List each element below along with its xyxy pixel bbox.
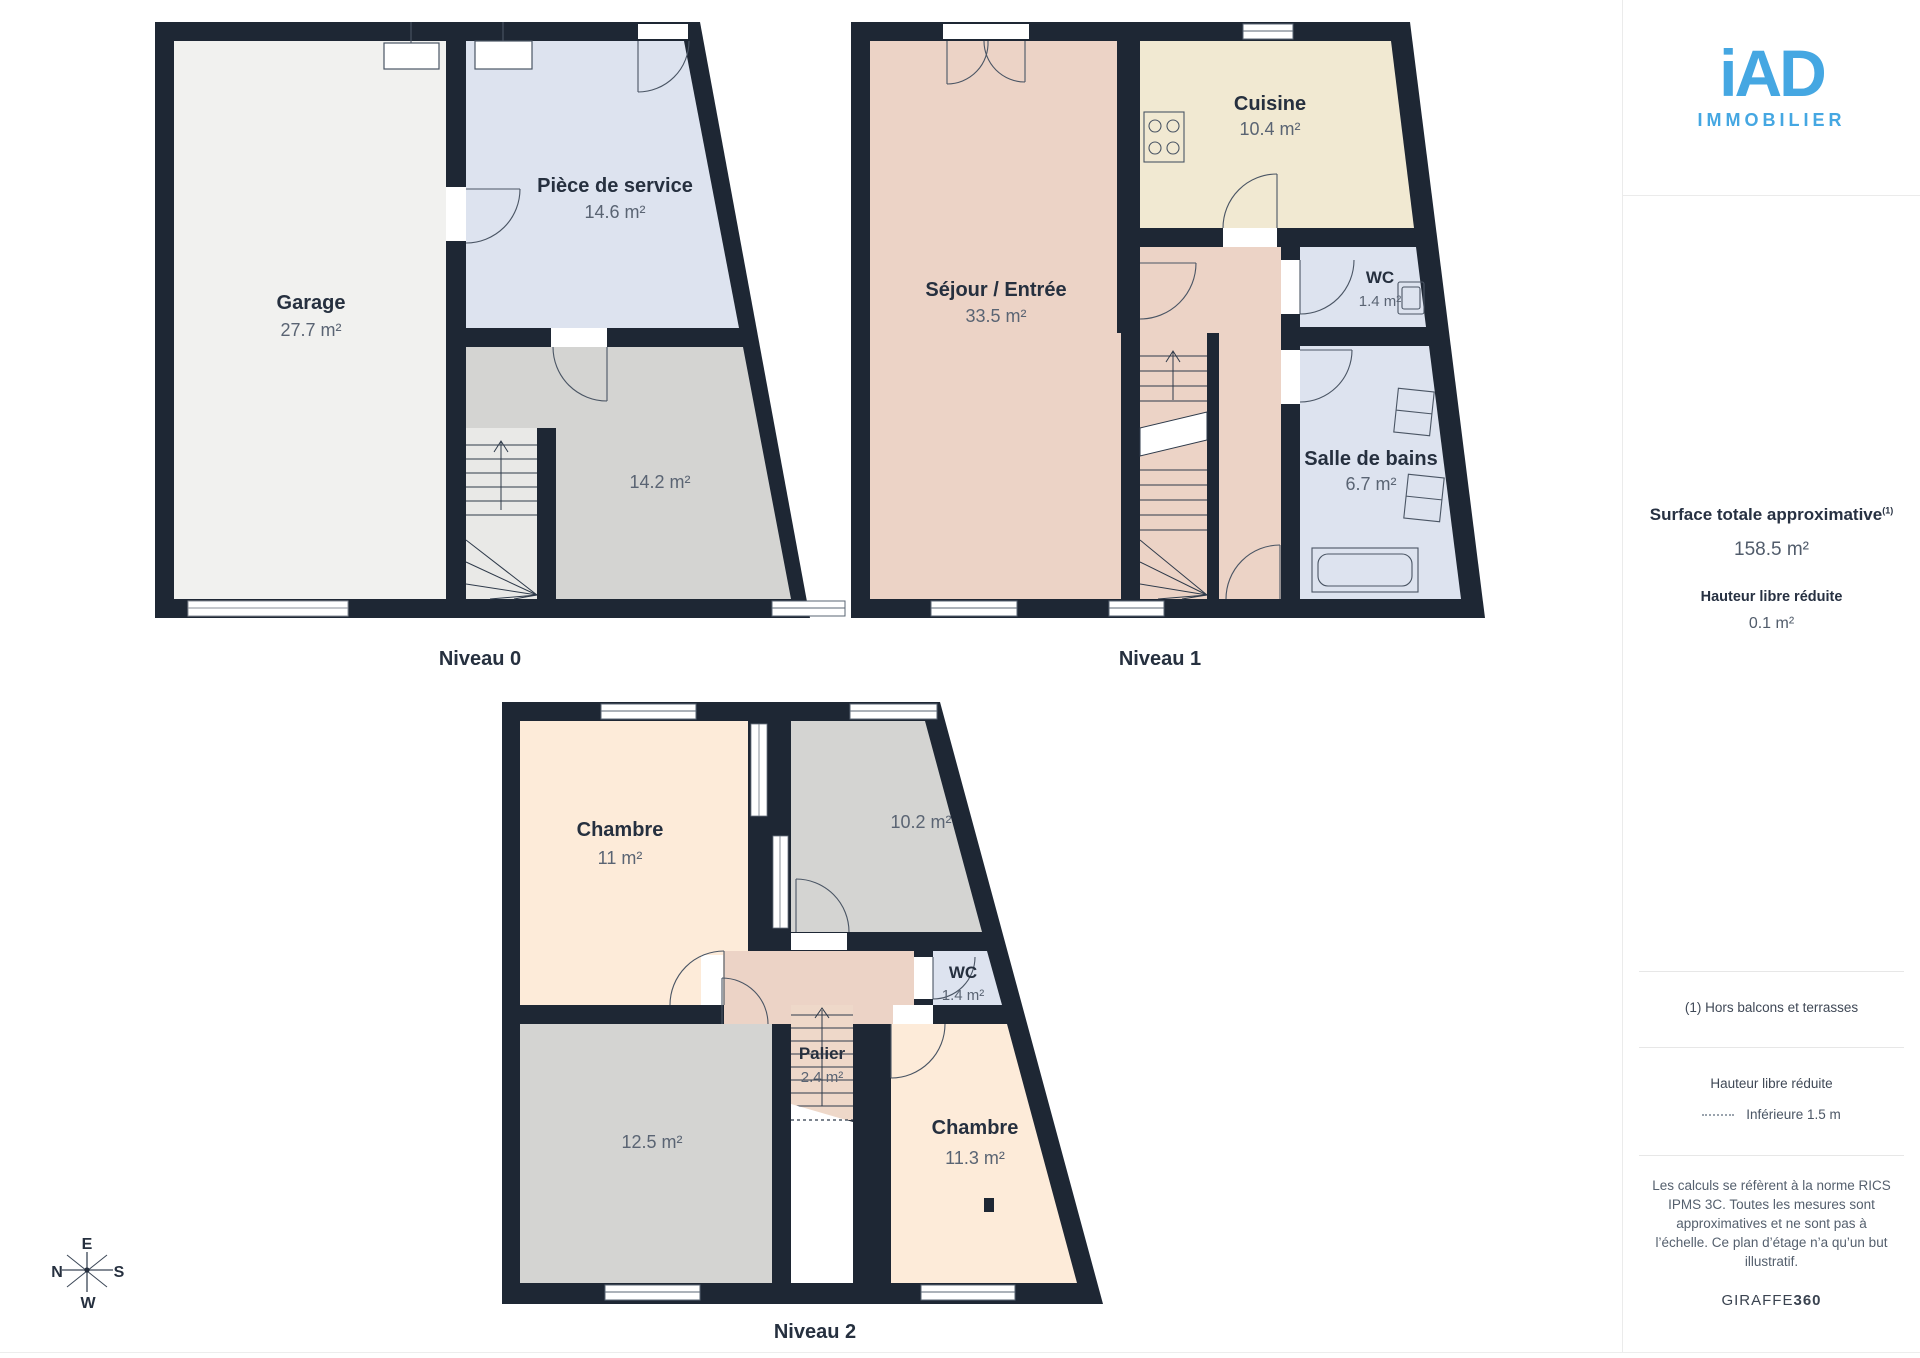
compass-right: S bbox=[114, 1264, 125, 1281]
door-opening bbox=[446, 187, 466, 241]
compass-rose: E N S W bbox=[51, 1236, 124, 1312]
room-label-wc-n2: WC bbox=[949, 963, 977, 982]
level-0-plan: Garage 27.7 m² Pièce de service 14.6 m² … bbox=[155, 22, 810, 670]
compass-top: E bbox=[82, 1236, 93, 1253]
room-label-piece-de-service: Pièce de service bbox=[537, 175, 693, 197]
room-area-10-2: 10.2 m² bbox=[890, 812, 951, 832]
door-opening bbox=[1281, 350, 1300, 404]
wall-stub bbox=[1117, 247, 1140, 333]
column-marker bbox=[984, 1198, 994, 1212]
room-label-palier: Palier bbox=[799, 1044, 846, 1063]
iad-logo-subtitle: IMMOBILIER bbox=[1623, 110, 1920, 131]
level-1-plan: Séjour / Entrée 33.5 m² Cuisine 10.4 m² … bbox=[772, 22, 1485, 670]
reduced-height-value: 0.1 m² bbox=[1623, 615, 1920, 633]
room-area-12-5: 12.5 m² bbox=[621, 1132, 682, 1152]
disclaimer-line: IPMS 3C. Toutes les mesures sont bbox=[1623, 1195, 1920, 1214]
level-0-label: Niveau 0 bbox=[439, 648, 521, 670]
height-legend-row: Inférieure 1.5 m bbox=[1623, 1107, 1920, 1122]
stairs-level-0 bbox=[466, 428, 537, 599]
giraffe360-credit: GIRAFFE360 bbox=[1623, 1292, 1920, 1309]
door-opening bbox=[638, 24, 688, 39]
reduced-height-title: Hauteur libre réduite bbox=[1623, 589, 1920, 605]
room-area-chambre-2: 11.3 m² bbox=[945, 1148, 1005, 1168]
room-label-sejour: Séjour / Entrée bbox=[925, 279, 1066, 301]
legal-disclaimer: Les calculs se réfèrent à la norme RICS … bbox=[1623, 1176, 1920, 1271]
room-label-salle-de-bains: Salle de bains bbox=[1304, 448, 1437, 470]
room-label-chambre-2: Chambre bbox=[932, 1117, 1019, 1139]
height-legend: Hauteur libre réduite Inférieure 1.5 m bbox=[1623, 1076, 1920, 1122]
room-area-cuisine: 10.4 m² bbox=[1239, 119, 1300, 139]
room-label-cuisine: Cuisine bbox=[1234, 93, 1306, 115]
stair-wall-left bbox=[772, 1024, 791, 1283]
compass-center bbox=[84, 1267, 89, 1272]
compass-left: N bbox=[51, 1264, 63, 1281]
door-opening bbox=[1281, 260, 1300, 314]
door-opening bbox=[551, 328, 607, 347]
iad-logo: iAD bbox=[1623, 40, 1920, 106]
door-opening bbox=[893, 1005, 933, 1024]
dotted-line-icon bbox=[1702, 1114, 1734, 1116]
surface-summary: Surface totale approximative(1) 158.5 m²… bbox=[1623, 505, 1920, 633]
room-area-wc-n1: 1.4 m² bbox=[1359, 293, 1402, 310]
room-area-14-2: 14.2 m² bbox=[629, 472, 690, 492]
room-area-garage: 27.7 m² bbox=[280, 320, 341, 340]
room-area-sejour: 33.5 m² bbox=[965, 306, 1026, 326]
room-area-salle-de-bains: 6.7 m² bbox=[1345, 474, 1396, 494]
door-opening bbox=[701, 955, 723, 1005]
disclaimer-line: Les calculs se réfèrent à la norme RICS bbox=[1623, 1176, 1920, 1195]
disclaimer-line: approximatives et ne sont pas à bbox=[1623, 1214, 1920, 1233]
height-legend-value: Inférieure 1.5 m bbox=[1746, 1107, 1841, 1122]
disclaimer-line: l’échelle. Ce plan d’étage n’a qu’un but bbox=[1623, 1233, 1920, 1252]
stair-wall-right bbox=[853, 1024, 872, 1283]
floor-plan-page: Garage 27.7 m² Pièce de service 14.6 m² … bbox=[0, 0, 1920, 1358]
credit-regular: GIRAFFE bbox=[1721, 1292, 1793, 1309]
total-surface-title-text: Surface totale approximative bbox=[1650, 505, 1882, 524]
bottom-separator bbox=[0, 1352, 1920, 1353]
total-surface-title: Surface totale approximative(1) bbox=[1623, 505, 1920, 525]
room-label-chambre-1: Chambre bbox=[577, 819, 664, 841]
room-area-palier: 2.4 m² bbox=[801, 1069, 844, 1086]
room-area-piece-de-service: 14.6 m² bbox=[584, 202, 645, 222]
height-legend-title: Hauteur libre réduite bbox=[1623, 1076, 1920, 1091]
footnote-marker: (1) bbox=[1882, 505, 1893, 515]
level-2-plan: Chambre 11 m² 10.2 m² WC 1.4 m² Palier 2… bbox=[502, 702, 1103, 1343]
total-surface-value: 158.5 m² bbox=[1623, 539, 1920, 561]
door-opening bbox=[914, 957, 933, 999]
info-sidebar: iAD IMMOBILIER Surface totale approximat… bbox=[1622, 0, 1920, 1352]
stairs-level-2 bbox=[791, 1005, 853, 1122]
room-12-5 bbox=[520, 1024, 772, 1283]
disclaimer-line: illustratif. bbox=[1623, 1252, 1920, 1271]
room-label-wc-n1: WC bbox=[1366, 268, 1394, 287]
room-label-garage: Garage bbox=[277, 292, 346, 314]
level-2-label: Niveau 2 bbox=[774, 1321, 856, 1343]
divider bbox=[1639, 971, 1904, 972]
stair-wall-right bbox=[1207, 333, 1219, 599]
door-opening bbox=[1223, 228, 1277, 247]
level-1-label: Niveau 1 bbox=[1119, 648, 1201, 670]
credit-bold: 360 bbox=[1793, 1292, 1821, 1309]
room-area-chambre-1: 11 m² bbox=[598, 848, 643, 868]
garage-door bbox=[188, 601, 348, 616]
agency-logo-block: iAD IMMOBILIER bbox=[1623, 0, 1920, 196]
stairwell-void bbox=[791, 1122, 853, 1283]
door-opening bbox=[791, 933, 847, 950]
footnote-text: (1) Hors balcons et terrasses bbox=[1623, 1000, 1920, 1015]
stair-wall-left bbox=[1121, 333, 1140, 599]
divider bbox=[1639, 1047, 1904, 1048]
divider bbox=[1639, 1155, 1904, 1156]
room-area-wc-n2: 1.4 m² bbox=[942, 987, 985, 1004]
compass-bottom: W bbox=[80, 1295, 96, 1312]
